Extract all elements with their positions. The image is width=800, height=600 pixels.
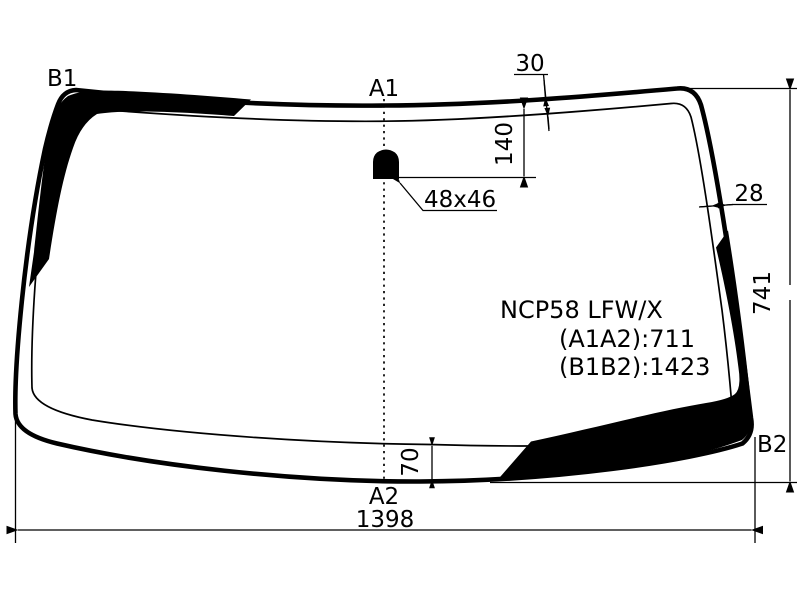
mirror-mount [373,150,399,180]
dim-side-band-value: 28 [734,181,763,207]
dim-30-down-arrow [544,80,545,98]
spec-b1b2: (B1B2):1423 [559,353,710,381]
dim-28-left-arrow [727,205,734,206]
spec-a1a2: (A1A2):711 [559,325,695,353]
windshield-diagram: B1 A1 A2 B2 30 140 28 741 70 1398 48x46 … [0,0,800,600]
ceramic-band-top-left [29,91,251,287]
label-b2: B2 [757,432,787,458]
label-b1: B1 [47,66,77,92]
dim-height-value: 741 [750,271,776,315]
part-code: NCP58 LFW/X [500,296,663,324]
dim-width-value: 1398 [356,507,415,533]
dim-bottom-band-value: 70 [398,447,424,476]
windshield-diagram-page: B1 A1 A2 B2 30 140 28 741 70 1398 48x46 … [0,0,800,600]
dim-top-band-value: 30 [515,51,544,77]
label-a1: A1 [369,76,399,102]
dim-mount-size-value: 48x46 [424,187,496,213]
dim-mount-offset-value: 140 [492,122,518,166]
dim-28-right-arrow [700,206,712,207]
